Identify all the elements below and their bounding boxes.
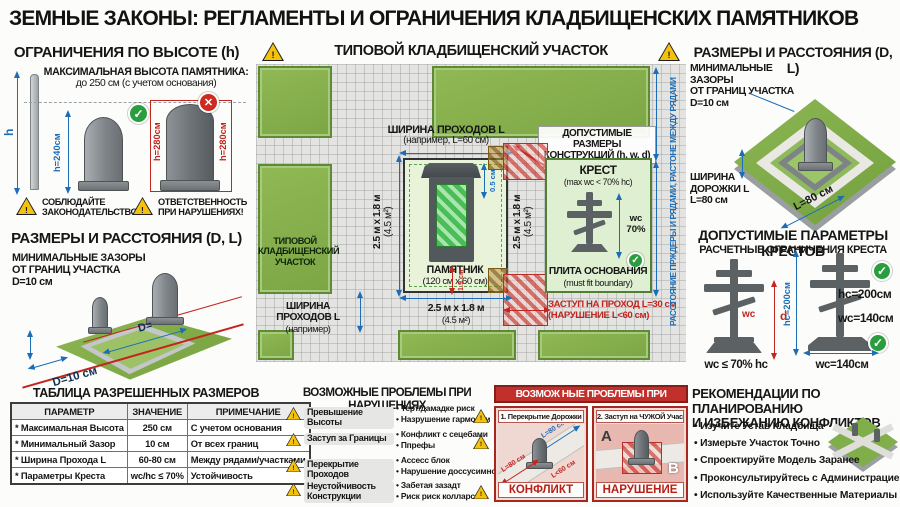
grass-plot xyxy=(258,66,332,138)
warning-icon xyxy=(16,197,37,215)
problems-section: ВОЗМОЖНЫЕ ПРОБЛЕМЫ ПРИ НАРУШЕНИЯХ Превыш… xyxy=(284,385,490,502)
edge-gap-dim xyxy=(742,156,743,172)
plot-a-label: A xyxy=(601,428,612,445)
orthodox-cross-icon xyxy=(565,192,615,254)
gap-label-small-top: 0.5 см xyxy=(488,166,498,196)
table-header-row: ПАРАМЕТР ЗНАЧЕНИЕ ПРИМЕЧАНИЕ xyxy=(11,403,310,420)
recommendations-list: Изучите Устав Кладбища Измерьте Участок … xyxy=(694,421,900,507)
warning-text-2: ОТВЕТСТВЕННОСТЬПРИ НАРУШЕНИЯХ! xyxy=(158,197,250,218)
typical-plot-caption: ТИПОВОЙКЛАДБИЩЕНСКИЙУЧАСТОК xyxy=(258,236,332,267)
path-width-top-label: ШИРИНА ПРОХОДОВ L (например, L=60 см) xyxy=(376,124,516,147)
right-distances-section: РАЗМЕРЫ И РАССТОЯНИЯ (D, L) МИНИМАЛЬНЫЕ … xyxy=(686,40,900,225)
row-spacing-label: РАССТОЯНИЕ ПРЖДЕРЫ И РЯДАМИ, РАСТОНЕ МЕЖ… xyxy=(668,72,683,332)
min-gap-note-right: МИНИМАЛЬНЫЕ ЗАЗОРЫ ОТ ГРАНИЦ УЧАСТКА D=1… xyxy=(690,63,810,110)
ok-check-icon xyxy=(128,103,149,124)
pole-height-dimension xyxy=(17,78,18,188)
warning-icon xyxy=(132,197,153,215)
problem-label: Превышение Высоты xyxy=(304,407,394,429)
monument-grave-bed xyxy=(436,184,467,247)
hc-value-label: hc=200см xyxy=(838,287,891,301)
plot-size-bottom-label: 2.5 м x 1.8 м (4.5 м²) xyxy=(416,303,496,325)
recommendation-item: Проконсультируйтесь с Администрацией xyxy=(694,473,900,484)
card2-monument xyxy=(634,430,649,460)
recommendation-item: Измерьте Участок Точно xyxy=(694,438,900,449)
base-plate-label: ПЛИТА ОСНОВАНИЯ xyxy=(547,266,649,277)
violations-panel: ВОЗМОЖ НЫЕ ПРОБЛЕМЫ ПРИ НАРУШЕНИХ 1. Пер… xyxy=(494,385,688,502)
problem-label: Неустойчивость Конструкции xyxy=(304,481,394,503)
monument-cap xyxy=(421,163,481,178)
warning-icon xyxy=(286,483,301,496)
gap-dimension-small-bottom xyxy=(452,272,453,288)
card2-illustration: A B xyxy=(596,424,684,482)
violation-card-path-overlap: 1. Перекрытие Дорожки L=80 см L=80 см L<… xyxy=(494,406,588,502)
iso-plot-illustration: D= D=10 см xyxy=(0,245,253,385)
cross-plot: КРЕСТ (max wc < 70% hc) wc70% ПЛИТА ОСНО… xyxy=(545,158,652,293)
card2-footer: НАРУШЕНИЕ xyxy=(596,482,684,498)
problem-bullets: Ассесс блокНарушение доссусимности xyxy=(396,455,510,476)
cell-param: * Параметры Креста xyxy=(11,468,127,485)
small-monument-1-base xyxy=(88,327,112,334)
table-row: * Ширина Прохода L 60-80 см Между рядами… xyxy=(11,452,310,468)
bad-height-label-right: h=280см xyxy=(218,112,230,172)
cell-value: 250 см xyxy=(127,420,187,436)
card1-footer: КОНФЛИКТ xyxy=(498,482,584,498)
encroachment-dimension xyxy=(510,310,544,311)
orthodox-cross-icon xyxy=(804,253,876,357)
left-cross-formula: wc ≤ 70% hc xyxy=(688,359,784,371)
cemetery-map: ТИПОВОЙКЛАДБИЩЕНСКИЙУЧАСТОК ШИРИНА ПРОХО… xyxy=(256,64,686,362)
cell-param: * Максимальная Высота xyxy=(11,420,127,436)
bad-monument-stone xyxy=(166,104,214,182)
cross-width-label: wc70% xyxy=(623,214,649,235)
allowed-sizes-table: ПАРАМЕТР ЗНАЧЕНИЕ ПРИМЕЧАНИЕ * Максималь… xyxy=(10,402,311,485)
height-limits-section: ОГРАНИЧЕНИЯ ПО ВЫСОТЕ (h) МАКСИМАЛЬНАЯ В… xyxy=(0,40,253,255)
violation-x-icon xyxy=(198,92,219,113)
cross-ok-icon-top xyxy=(872,261,892,281)
violations-panel-header: ВОЗМОЖ НЫЕ ПРОБЛЕМЫ ПРИ НАРУШЕНИХ xyxy=(494,385,688,403)
cell-value: wc/hc ≤ 70% xyxy=(127,468,187,485)
col-header: ПАРАМЕТР xyxy=(11,403,127,420)
card1-title: 1. Перекрытие Дорожки xyxy=(498,410,584,423)
map-title: ТИПОВОЙ КЛАДБИЩЕНСКИЙ УЧАСТОК xyxy=(286,43,656,59)
table-row: * Параметры Креста wc/hc ≤ 70% Устойчиво… xyxy=(11,468,310,485)
problem-bullets: Забетая зазадтРиск риск колларсы xyxy=(396,480,482,501)
recommendation-item: Спроектируйте Модель Заранее xyxy=(694,455,900,466)
plot-width-dimension-bottom xyxy=(406,298,506,299)
max-height-subtitle: МАКСИМАЛЬНАЯ ВЫСОТА ПАМЯТНИКА: xyxy=(40,66,252,78)
grass-plot xyxy=(258,164,332,294)
problem-bullets: Конфликт с сецебамиПпрефы xyxy=(396,429,488,450)
map-header: ТИПОВОЙ КЛАДБИЩЕНСКИЙ УЧАСТОК xyxy=(256,40,686,64)
violation-zone-top xyxy=(503,143,548,180)
page-title: ЗЕМНЫЕ ЗАКОНЫ: РЕГЛАМЕНТЫ И ОГРАНИЧЕНИЯ … xyxy=(9,7,899,31)
card1-illustration: L=80 см L=80 см L<60 см xyxy=(498,424,584,482)
cell-param: * Минимальный Зазор xyxy=(11,436,127,452)
base-plate-note: (must fit boundary) xyxy=(547,278,649,288)
violation-card-neighbor-plot: 2. Заступ на ЧУЖОЙ Участок A B НАРУШЕНИЕ xyxy=(592,406,688,502)
recommendation-item: Используйте Качественные Материалы xyxy=(694,490,900,501)
small-monument-2 xyxy=(152,273,178,319)
gap-label-small-bottom: 1.9 см xyxy=(456,268,465,292)
table-title: ТАБЛИЦА РАЗРЕШЕННЫХ РАЗМЕРОВ xyxy=(10,386,282,400)
plot-size-left-label: 2.5 м x 1.8 м(4.5 м²) xyxy=(372,172,396,272)
card2-title: 2. Заступ на ЧУЖОЙ Участок xyxy=(596,410,684,423)
problem-label: Перекрытие Проходов xyxy=(304,459,394,481)
wc-value-label: wc=140см xyxy=(838,311,893,325)
table-row: * Минимальный Зазор 10 см От всех границ xyxy=(11,436,310,452)
warning-icon xyxy=(286,433,301,446)
warning-icon xyxy=(658,42,680,61)
ok-monument-dimension xyxy=(68,117,69,187)
bad-monument-base xyxy=(160,180,220,191)
edge-gap-dimension-v xyxy=(30,337,31,353)
wc-dim-label: wc xyxy=(742,309,755,320)
warning-icon xyxy=(286,459,301,472)
bad-height-label-left: h=280см xyxy=(152,112,164,172)
recommendation-item: Изучите Устав Кладбища xyxy=(694,421,900,432)
warning-text-1: СОБЛЮДАЙТЕЗАКОНОДАТЕЛЬСТВО! xyxy=(42,197,128,218)
small-monument-1 xyxy=(92,297,108,329)
ok-monument-base xyxy=(78,181,129,191)
slab-monument-base xyxy=(798,162,833,171)
measuring-pole xyxy=(30,74,39,190)
table-row: * Максимальная Высота 250 см С учетом ос… xyxy=(11,420,310,436)
grass-plot xyxy=(398,330,516,360)
cross-width-dimension xyxy=(619,200,620,252)
ok-monument-stone xyxy=(84,117,123,183)
max-height-value: до 250 см (с учетом основания) xyxy=(40,78,252,89)
plot-height-dimension-left xyxy=(399,162,400,290)
cell-param: * Ширина Прохода L xyxy=(11,452,127,468)
base-width-label: wc=140см xyxy=(802,359,882,371)
encroachment-label: ЗАСТУП НА ПРОХОД L=30 см(НАРУШЕНИЕ L<60 … xyxy=(548,300,684,321)
problem-label: Заступ за Границы xyxy=(304,433,394,445)
orthodox-cross-icon xyxy=(700,259,770,355)
height-section-title: ОГРАНИЧЕНИЯ ПО ВЫСОТЕ (h) xyxy=(0,44,253,61)
grass-plot xyxy=(538,330,650,360)
warning-icon xyxy=(262,42,284,61)
cross-formula: (max wc < 70% hc) xyxy=(547,177,649,187)
hc-dimension xyxy=(796,257,797,349)
recommendations-section: РЕКОМЕНДАЦИИ ПО ПЛАНИРОВАНИЮ И ИЗБЕЖАНИЮ… xyxy=(692,385,900,502)
col-header: ЗНАЧЕНИЕ xyxy=(127,403,187,420)
path-width-bottom-label: ШИРИНА ПРОХОДОВ L (например) xyxy=(260,301,356,334)
cross-plot-title: КРЕСТ xyxy=(547,163,649,177)
cell-value: 60-80 см xyxy=(127,452,187,468)
edge-gap-dimension-h xyxy=(34,359,61,368)
d-dimension xyxy=(774,287,775,353)
ok-monument-height-label: h=240см xyxy=(52,125,64,181)
plot-b-label: B xyxy=(668,460,679,477)
base-width-dimension xyxy=(810,353,872,354)
cell-value: 10 см xyxy=(127,436,187,452)
pole-height-label: h xyxy=(2,122,14,142)
grass-plot xyxy=(258,330,294,360)
path-width-dimension-bottom-left xyxy=(360,298,361,326)
row-spacing-dimension-2 xyxy=(656,168,657,290)
sizes-table-section: ТАБЛИЦА РАЗРЕШЕННЫХ РАЗМЕРОВ ПАРАМЕТР ЗН… xyxy=(10,385,282,502)
plot-size-right-label: 2.5 м x 1.8 м(4.5 м²) xyxy=(512,172,536,272)
row-spacing-dimension-1 xyxy=(656,74,657,154)
path-width-note: ШИРИНА ДОРОЖКИ L L=80 см xyxy=(690,172,760,207)
left-distances-section: РАЗМЕРЫ И РАССТОЯНИЯ (D, L) МИНИМАЛЬНЫЕ … xyxy=(0,225,253,385)
slab-monument xyxy=(804,118,827,164)
cross-params-section: ДОПУСТИМЫЕ ПАРАМЕТРЫ КРЕСТОВ РАСЧЕТНЫЕ О… xyxy=(686,225,900,383)
gap-dimension-small-top xyxy=(484,170,485,192)
hc-vertical-label: hc=200см xyxy=(782,269,795,339)
card2-monument-base xyxy=(628,458,655,465)
